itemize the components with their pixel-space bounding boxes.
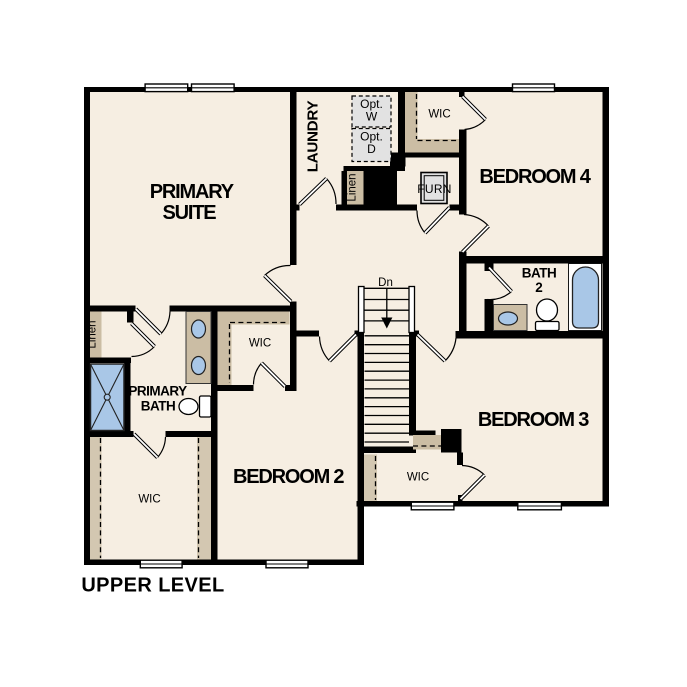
- svg-text:WIC: WIC: [407, 472, 429, 484]
- svg-text:SUITE: SUITE: [163, 202, 217, 224]
- svg-text:2: 2: [535, 280, 543, 295]
- svg-text:Dn: Dn: [378, 277, 393, 289]
- svg-text:PRIMARY: PRIMARY: [150, 181, 235, 203]
- svg-text:BEDROOM 4: BEDROOM 4: [479, 166, 591, 188]
- svg-text:Linen: Linen: [347, 173, 359, 201]
- svg-text:WIC: WIC: [428, 109, 450, 121]
- svg-text:BEDROOM 2: BEDROOM 2: [233, 466, 344, 488]
- svg-text:W: W: [366, 110, 378, 124]
- svg-text:UPPER LEVEL: UPPER LEVEL: [81, 575, 224, 597]
- svg-text:LAUNDRY: LAUNDRY: [305, 101, 322, 173]
- svg-text:BEDROOM 3: BEDROOM 3: [478, 409, 589, 431]
- svg-text:FURN: FURN: [417, 182, 452, 196]
- svg-text:BATH: BATH: [522, 266, 557, 281]
- svg-text:PRIMARY: PRIMARY: [128, 383, 187, 398]
- svg-text:WIC: WIC: [249, 338, 271, 350]
- svg-text:WIC: WIC: [138, 494, 160, 506]
- svg-text:Linen: Linen: [87, 320, 99, 348]
- svg-text:BATH: BATH: [141, 398, 176, 413]
- svg-text:D: D: [367, 142, 376, 156]
